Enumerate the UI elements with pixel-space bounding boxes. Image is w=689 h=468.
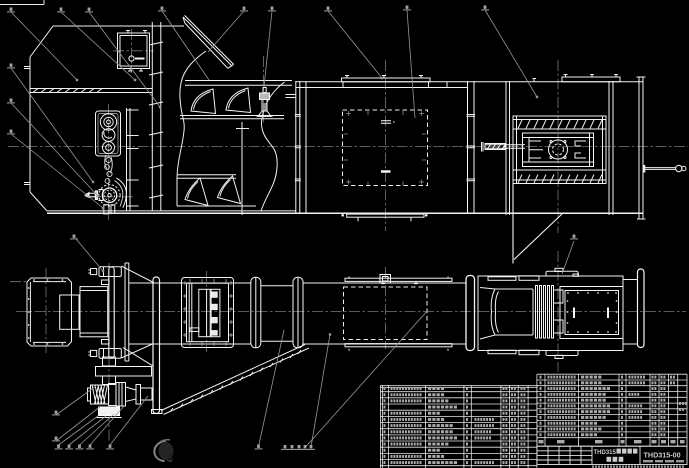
svg-text:THD315: THD315 — [594, 450, 617, 456]
svg-text:THD315-00: THD315-00 — [644, 451, 681, 460]
